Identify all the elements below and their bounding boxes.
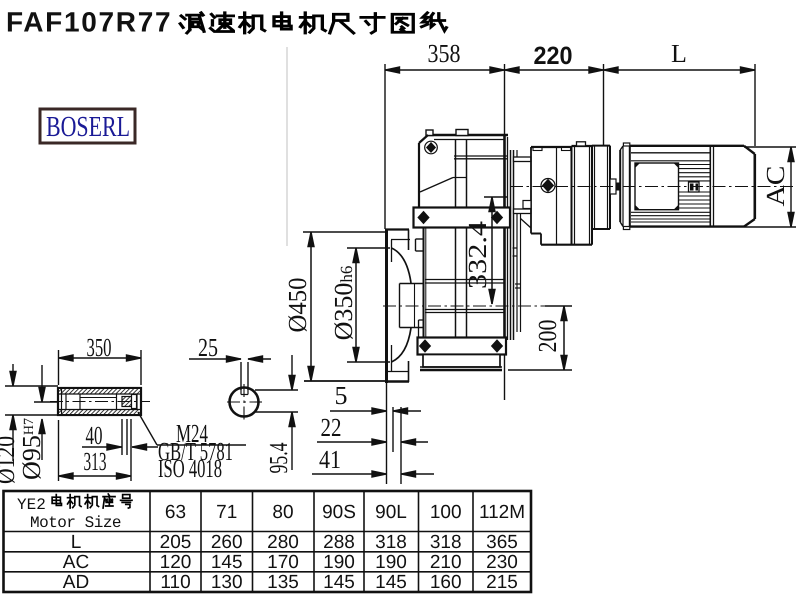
svg-text:AC: AC [761, 166, 790, 207]
svg-text:41: 41 [319, 445, 341, 474]
svg-text:160: 160 [430, 572, 462, 593]
svg-text:318: 318 [430, 532, 462, 553]
svg-text:220: 220 [534, 42, 573, 70]
svg-text:90L: 90L [375, 502, 407, 523]
svg-text:80: 80 [272, 502, 293, 523]
svg-text:BOSERL: BOSERL [46, 111, 130, 143]
svg-text:95.4: 95.4 [264, 443, 293, 474]
svg-text:71: 71 [216, 502, 237, 523]
svg-text:63: 63 [165, 502, 186, 523]
svg-text:170: 170 [267, 552, 299, 573]
svg-text:313: 313 [84, 447, 107, 476]
svg-text:130: 130 [211, 572, 243, 593]
svg-text:AC: AC [63, 552, 89, 573]
svg-text:FAF107R77: FAF107R77 [6, 7, 172, 38]
svg-text:22: 22 [321, 413, 342, 442]
svg-text:112M: 112M [479, 502, 525, 523]
svg-text:L: L [71, 532, 82, 553]
svg-text:25: 25 [198, 333, 218, 362]
svg-text:358: 358 [428, 39, 461, 68]
svg-text:100: 100 [430, 502, 462, 523]
svg-text:145: 145 [375, 572, 407, 593]
svg-text:AD: AD [63, 572, 89, 593]
svg-text:332.4: 332.4 [463, 221, 492, 289]
svg-text:145: 145 [323, 572, 355, 593]
svg-text:135: 135 [267, 572, 299, 593]
svg-text:318: 318 [375, 532, 407, 553]
svg-text:230: 230 [486, 552, 518, 573]
svg-text:190: 190 [323, 552, 355, 573]
svg-text:190: 190 [375, 552, 407, 573]
svg-text:YE2: YE2 [17, 496, 46, 514]
svg-text:Ø450: Ø450 [283, 278, 312, 333]
svg-text:40: 40 [86, 421, 103, 450]
svg-text:288: 288 [323, 532, 355, 553]
svg-text:110: 110 [160, 572, 190, 593]
svg-text:Motor Size: Motor Size [30, 514, 121, 532]
svg-text:280: 280 [267, 532, 299, 553]
svg-text:350: 350 [87, 333, 112, 362]
svg-text:Ø350h6: Ø350h6 [329, 266, 358, 341]
svg-text:90S: 90S [322, 502, 356, 523]
svg-text:260: 260 [211, 532, 243, 553]
svg-text:210: 210 [430, 552, 462, 573]
svg-text:5: 5 [335, 381, 348, 410]
svg-text:215: 215 [486, 572, 518, 593]
svg-text:365: 365 [486, 532, 518, 553]
svg-text:120: 120 [160, 552, 192, 573]
svg-text:200: 200 [533, 320, 562, 353]
svg-text:145: 145 [211, 552, 243, 573]
svg-text:205: 205 [160, 532, 192, 553]
svg-text:ISO 4018: ISO 4018 [158, 454, 222, 483]
svg-text:L: L [671, 39, 687, 68]
